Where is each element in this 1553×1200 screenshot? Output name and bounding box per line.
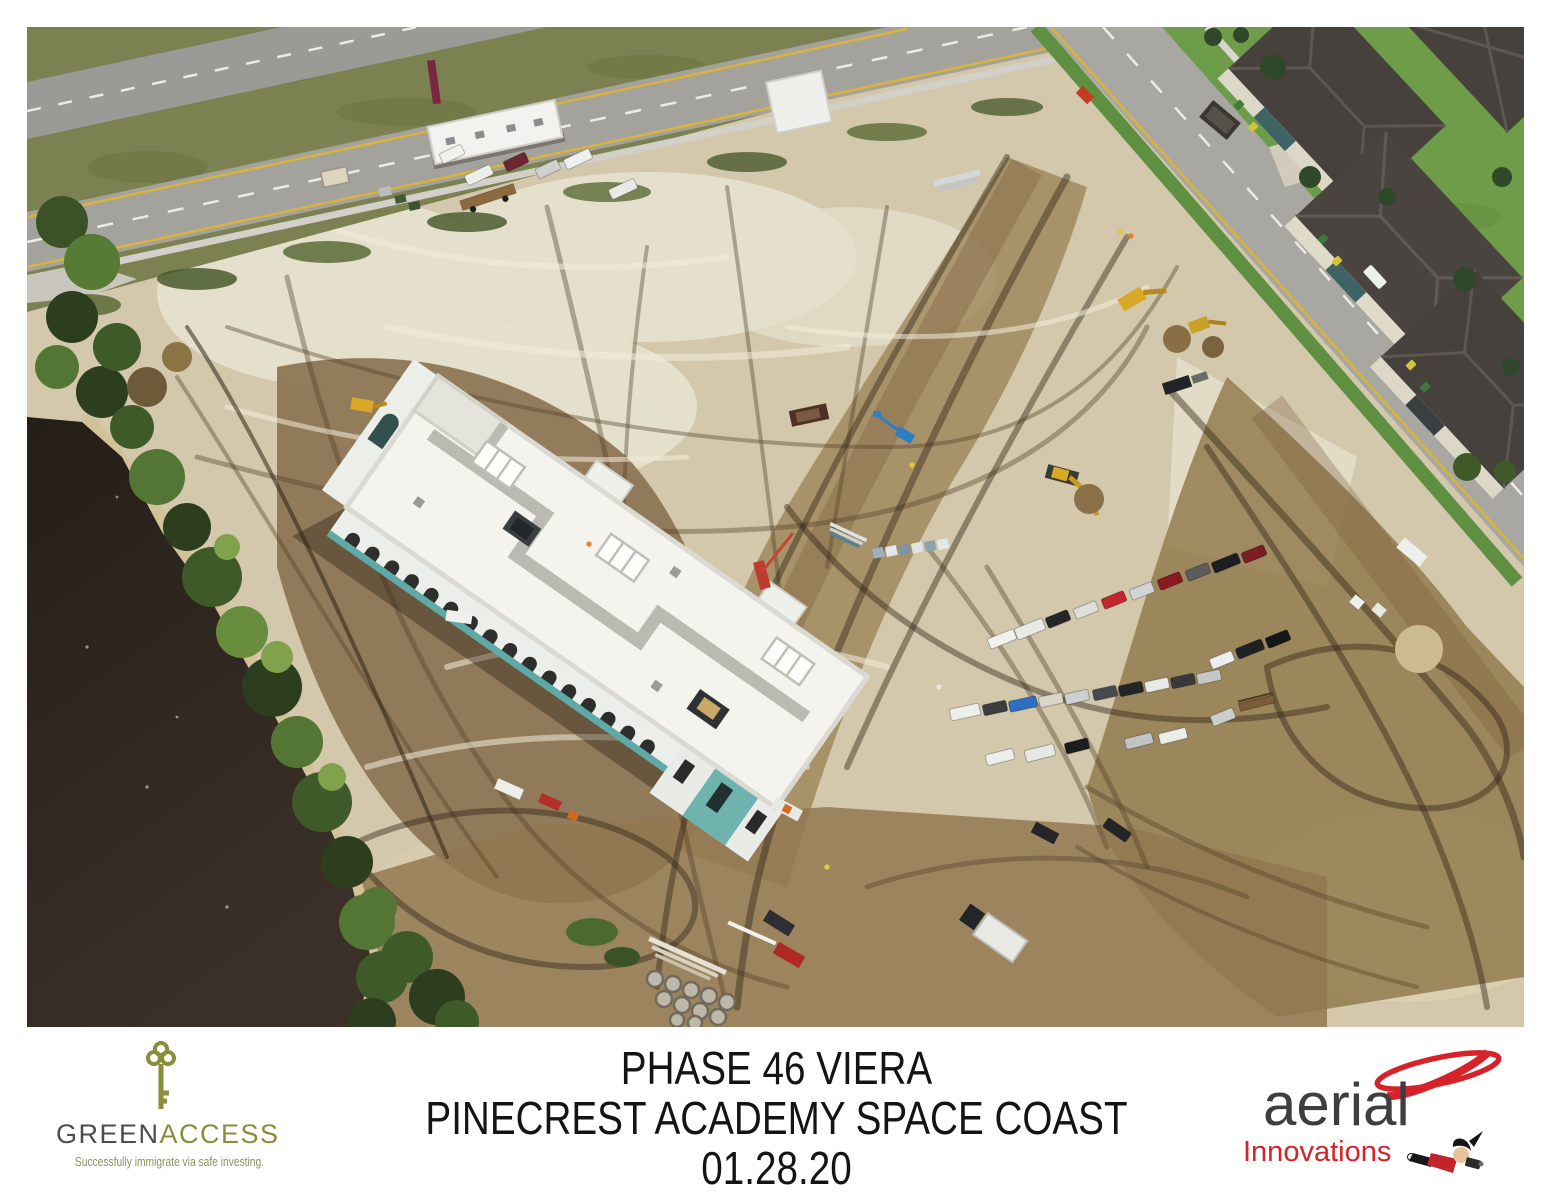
flying-photographer-icon <box>1408 1131 1484 1173</box>
aerial-photo-scene <box>27 27 1524 1027</box>
aerial-innovations-logo: aerial Innovations <box>1233 1033 1513 1193</box>
site-shed <box>766 71 832 134</box>
photo-page: GREENACCESS Successfully immigrate via s… <box>0 0 1553 1200</box>
footer: GREENACCESS Successfully immigrate via s… <box>0 1027 1553 1200</box>
aerial-photo <box>27 27 1524 1027</box>
aerial-wordmark: aerial <box>1263 1071 1410 1138</box>
innovations-wordmark: Innovations <box>1243 1136 1391 1168</box>
sand-mound <box>1395 625 1443 673</box>
